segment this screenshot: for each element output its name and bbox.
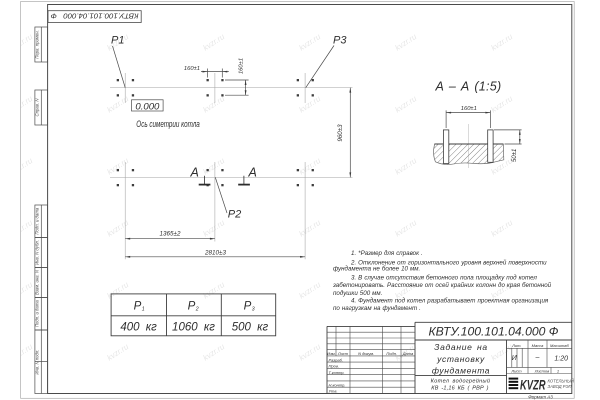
svg-text:КВТУ.100.101.04.000 Ф: КВТУ.100.101.04.000 Ф — [429, 325, 559, 339]
svg-text:Перв. примен.: Перв. примен. — [35, 30, 40, 59]
svg-text:1365±2: 1365±2 — [160, 231, 181, 238]
svg-text:забетонировать. Расстояние от: забетонировать. Расстояние от осей крайн… — [332, 282, 552, 289]
svg-text:3. В случае отсутствия бетонн: 3. В случае отсутствия бетонного пола пл… — [351, 275, 537, 282]
svg-text:по нагрузкам на фундамент .: по нагрузкам на фундамент . — [333, 305, 421, 312]
svg-text:–: – — [535, 355, 540, 362]
svg-text:Инв. N дубл.: Инв. N дубл. — [35, 240, 40, 265]
svg-text:Справ. N: Справ. N — [35, 98, 40, 117]
svg-text:Котел водогрейный: Котел водогрейный — [431, 377, 491, 384]
svg-text:2: 2 — [195, 307, 199, 313]
svg-text:Пров.: Пров. — [329, 364, 340, 369]
svg-text:ЗАВОД РЭП: ЗАВОД РЭП — [548, 384, 573, 389]
svg-text:фундамента не более 10 мм.: фундамента не более 10 мм. — [333, 266, 420, 273]
svg-text:Изм.: Изм. — [327, 351, 336, 356]
svg-text:Подп. и дата: Подп. и дата — [35, 207, 40, 235]
svg-text:Взам. инв. N: Взам. инв. N — [35, 269, 40, 295]
svg-text:установку: установку — [436, 354, 485, 364]
svg-text:Р: Р — [188, 300, 196, 312]
svg-text:A: A — [190, 166, 199, 180]
svg-text:3: 3 — [252, 307, 255, 313]
svg-text:Масштаб: Масштаб — [550, 343, 569, 348]
svg-text:Подп. и дата: Подп. и дата — [35, 300, 40, 328]
svg-text:P2: P2 — [228, 208, 241, 220]
svg-text:КВТУ.100.101.04.000 Ф: КВТУ.100.101.04.000 Ф — [51, 12, 139, 21]
svg-text:N докум.: N докум. — [358, 351, 374, 356]
svg-text:Масса: Масса — [532, 343, 545, 348]
svg-text:Лист: Лист — [337, 351, 349, 356]
svg-text:1:20: 1:20 — [554, 355, 568, 362]
svg-text:KVZR: KVZR — [520, 377, 546, 393]
svg-text:160±1: 160±1 — [238, 58, 244, 74]
svg-text:1. *Размер для справок .: 1. *Размер для справок . — [351, 250, 423, 257]
svg-text:Разраб.: Разраб. — [329, 357, 343, 362]
svg-text:Формат А3: Формат А3 — [528, 394, 553, 399]
svg-text:Листов: Листов — [534, 368, 550, 373]
svg-text:A: A — [248, 166, 257, 180]
svg-text:1: 1 — [142, 307, 145, 313]
svg-text:Лит.: Лит. — [511, 343, 521, 348]
svg-text:4. Фундамент под котел разраб: 4. Фундамент под котел разрабатывает про… — [351, 298, 549, 305]
svg-text:А – А (1:5): А – А (1:5) — [434, 79, 501, 93]
svg-text:КОТЕЛЬНЫЙ: КОТЕЛЬНЫЙ — [548, 378, 574, 383]
svg-text:960±3: 960±3 — [337, 124, 344, 142]
svg-text:Т.контр.: Т.контр. — [329, 370, 345, 375]
svg-text:фундамента: фундамента — [432, 365, 490, 375]
svg-text:50±1: 50±1 — [512, 149, 518, 162]
svg-text:Ось симетрии котла: Ось симетрии котла — [136, 119, 200, 129]
svg-text:Инв. N подл.: Инв. N подл. — [35, 349, 40, 374]
svg-text:КВ -1,16 КБ ( РВР ): КВ -1,16 КБ ( РВР ) — [431, 385, 488, 391]
svg-text:1: 1 — [557, 368, 559, 373]
svg-text:160±1: 160±1 — [461, 106, 477, 112]
svg-text:P1: P1 — [111, 35, 124, 47]
svg-text:Лист: Лист — [510, 368, 522, 373]
svg-text:Дата: Дата — [402, 351, 414, 356]
svg-text:400 кг: 400 кг — [120, 322, 157, 334]
svg-text:Н.контр.: Н.контр. — [329, 382, 346, 387]
svg-text:1060 кг: 1060 кг — [172, 322, 215, 334]
svg-text:160±1: 160±1 — [184, 66, 200, 72]
svg-text:Подп.: Подп. — [386, 351, 397, 356]
svg-text:Задание на: Задание на — [434, 342, 488, 352]
svg-text:P3: P3 — [333, 35, 347, 47]
svg-text:0.000: 0.000 — [135, 101, 160, 111]
svg-text:500 кг: 500 кг — [232, 322, 269, 334]
svg-text:Р: Р — [244, 300, 252, 312]
svg-text:2810±3: 2810±3 — [204, 250, 226, 257]
svg-text:Р: Р — [134, 300, 142, 312]
svg-text:подушки 500 мм.: подушки 500 мм. — [333, 290, 382, 297]
svg-text:Утв.: Утв. — [329, 389, 338, 394]
